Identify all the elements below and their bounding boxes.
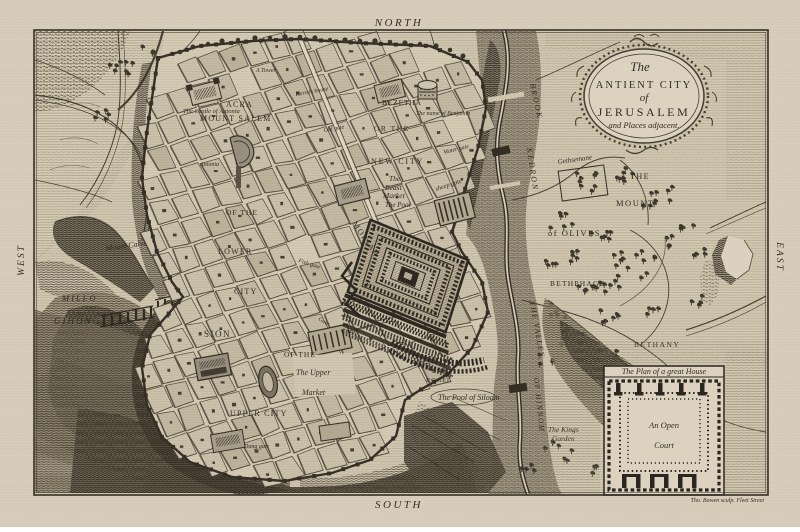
svg-text:A Tower: A Tower xyxy=(255,68,277,74)
svg-text:ACRA: ACRA xyxy=(226,100,253,109)
svg-text:Tho. Bowen sculp. Fleet Street: Tho. Bowen sculp. Fleet Street xyxy=(691,498,765,504)
svg-text:The: The xyxy=(630,59,650,74)
svg-text:NORTH: NORTH xyxy=(374,17,424,29)
svg-text:OR THE: OR THE xyxy=(374,124,410,133)
svg-text:The: The xyxy=(389,174,401,183)
svg-text:Market: Market xyxy=(301,388,326,397)
svg-text:and Places adjacent.: and Places adjacent. xyxy=(608,120,679,130)
svg-text:Court: Court xyxy=(654,440,674,450)
svg-text:OF THE: OF THE xyxy=(284,350,316,359)
svg-text:of OLIVES: of OLIVES xyxy=(548,228,601,238)
svg-text:BETHPHAGE: BETHPHAGE xyxy=(550,279,605,288)
svg-text:SOUTH: SOUTH xyxy=(375,499,423,511)
svg-text:EAST: EAST xyxy=(774,241,784,272)
svg-text:UPPER CITY: UPPER CITY xyxy=(230,409,288,418)
svg-text:MOUNT SALEM: MOUNT SALEM xyxy=(200,114,272,123)
svg-text:WEST: WEST xyxy=(17,244,27,276)
svg-text:The name of Benjamin: The name of Benjamin xyxy=(416,110,470,117)
svg-text:GIHON: GIHON xyxy=(54,316,93,326)
svg-text:Antonia: Antonia xyxy=(199,162,219,168)
svg-text:An Open: An Open xyxy=(648,420,679,430)
svg-text:LOWER: LOWER xyxy=(218,247,252,256)
svg-text:ROGEL: ROGEL xyxy=(426,377,452,384)
svg-text:MOUNT: MOUNT xyxy=(616,198,655,208)
svg-text:Dung gate: Dung gate xyxy=(243,444,270,450)
svg-text:The Castle of Antonia: The Castle of Antonia xyxy=(183,108,240,115)
svg-text:JERUSALEM: JERUSALEM xyxy=(598,105,691,119)
svg-text:SION: SION xyxy=(204,329,231,339)
svg-text:THE: THE xyxy=(630,172,650,181)
svg-text:CITY: CITY xyxy=(234,287,257,296)
svg-text:The Pool: The Pool xyxy=(385,201,411,209)
svg-text:Market: Market xyxy=(382,191,406,200)
svg-text:NEW CITY: NEW CITY xyxy=(371,157,424,166)
svg-text:BEZETHA: BEZETHA xyxy=(382,98,422,107)
svg-text:The Pool of Siloam: The Pool of Siloam xyxy=(438,393,500,402)
svg-text:The Plan of a great House: The Plan of a great House xyxy=(622,367,707,376)
svg-text:ANTIENT CITY: ANTIENT CITY xyxy=(596,80,692,91)
svg-text:EN: EN xyxy=(432,368,442,375)
svg-text:The Upper: The Upper xyxy=(296,368,331,377)
svg-text:OF THE: OF THE xyxy=(226,208,258,217)
svg-text:MILLO: MILLO xyxy=(61,293,98,303)
